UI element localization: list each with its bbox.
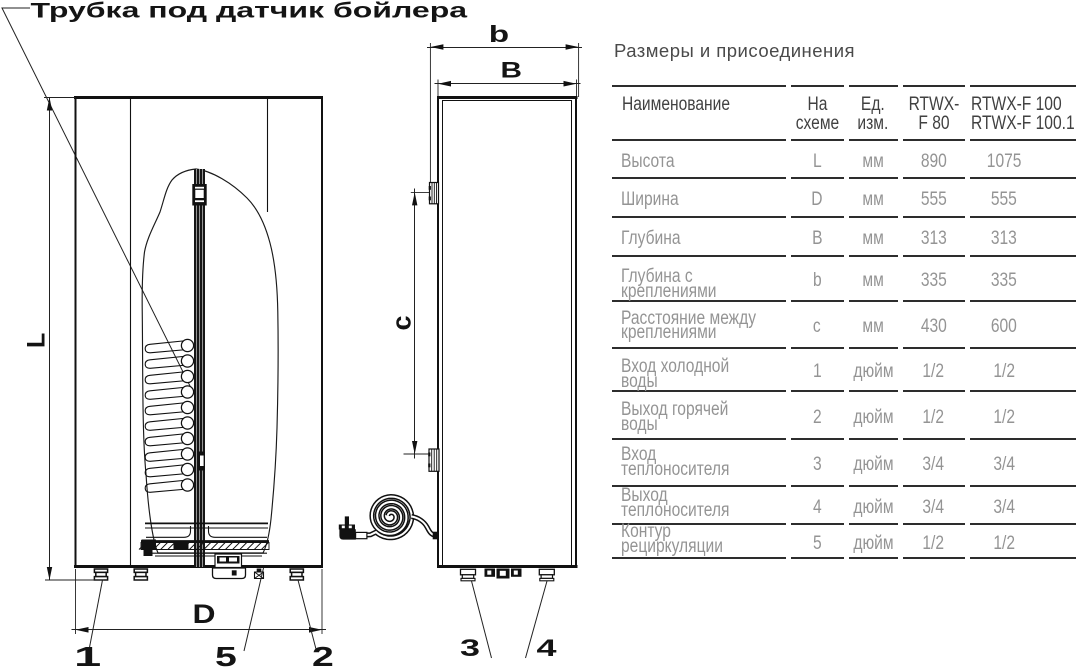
svg-text:c: c bbox=[387, 315, 417, 330]
svg-text:D: D bbox=[193, 599, 216, 629]
svg-text:B: B bbox=[501, 57, 522, 83]
svg-text:2: 2 bbox=[312, 641, 334, 667]
svg-text:1: 1 bbox=[74, 641, 101, 667]
svg-text:b: b bbox=[489, 22, 509, 48]
svg-text:Трубка под датчик бойлера: Трубка под датчик бойлера bbox=[31, 0, 469, 22]
svg-text:L: L bbox=[23, 333, 51, 348]
svg-text:5: 5 bbox=[215, 641, 237, 667]
svg-text:3: 3 bbox=[460, 635, 480, 662]
svg-text:4: 4 bbox=[537, 635, 557, 662]
